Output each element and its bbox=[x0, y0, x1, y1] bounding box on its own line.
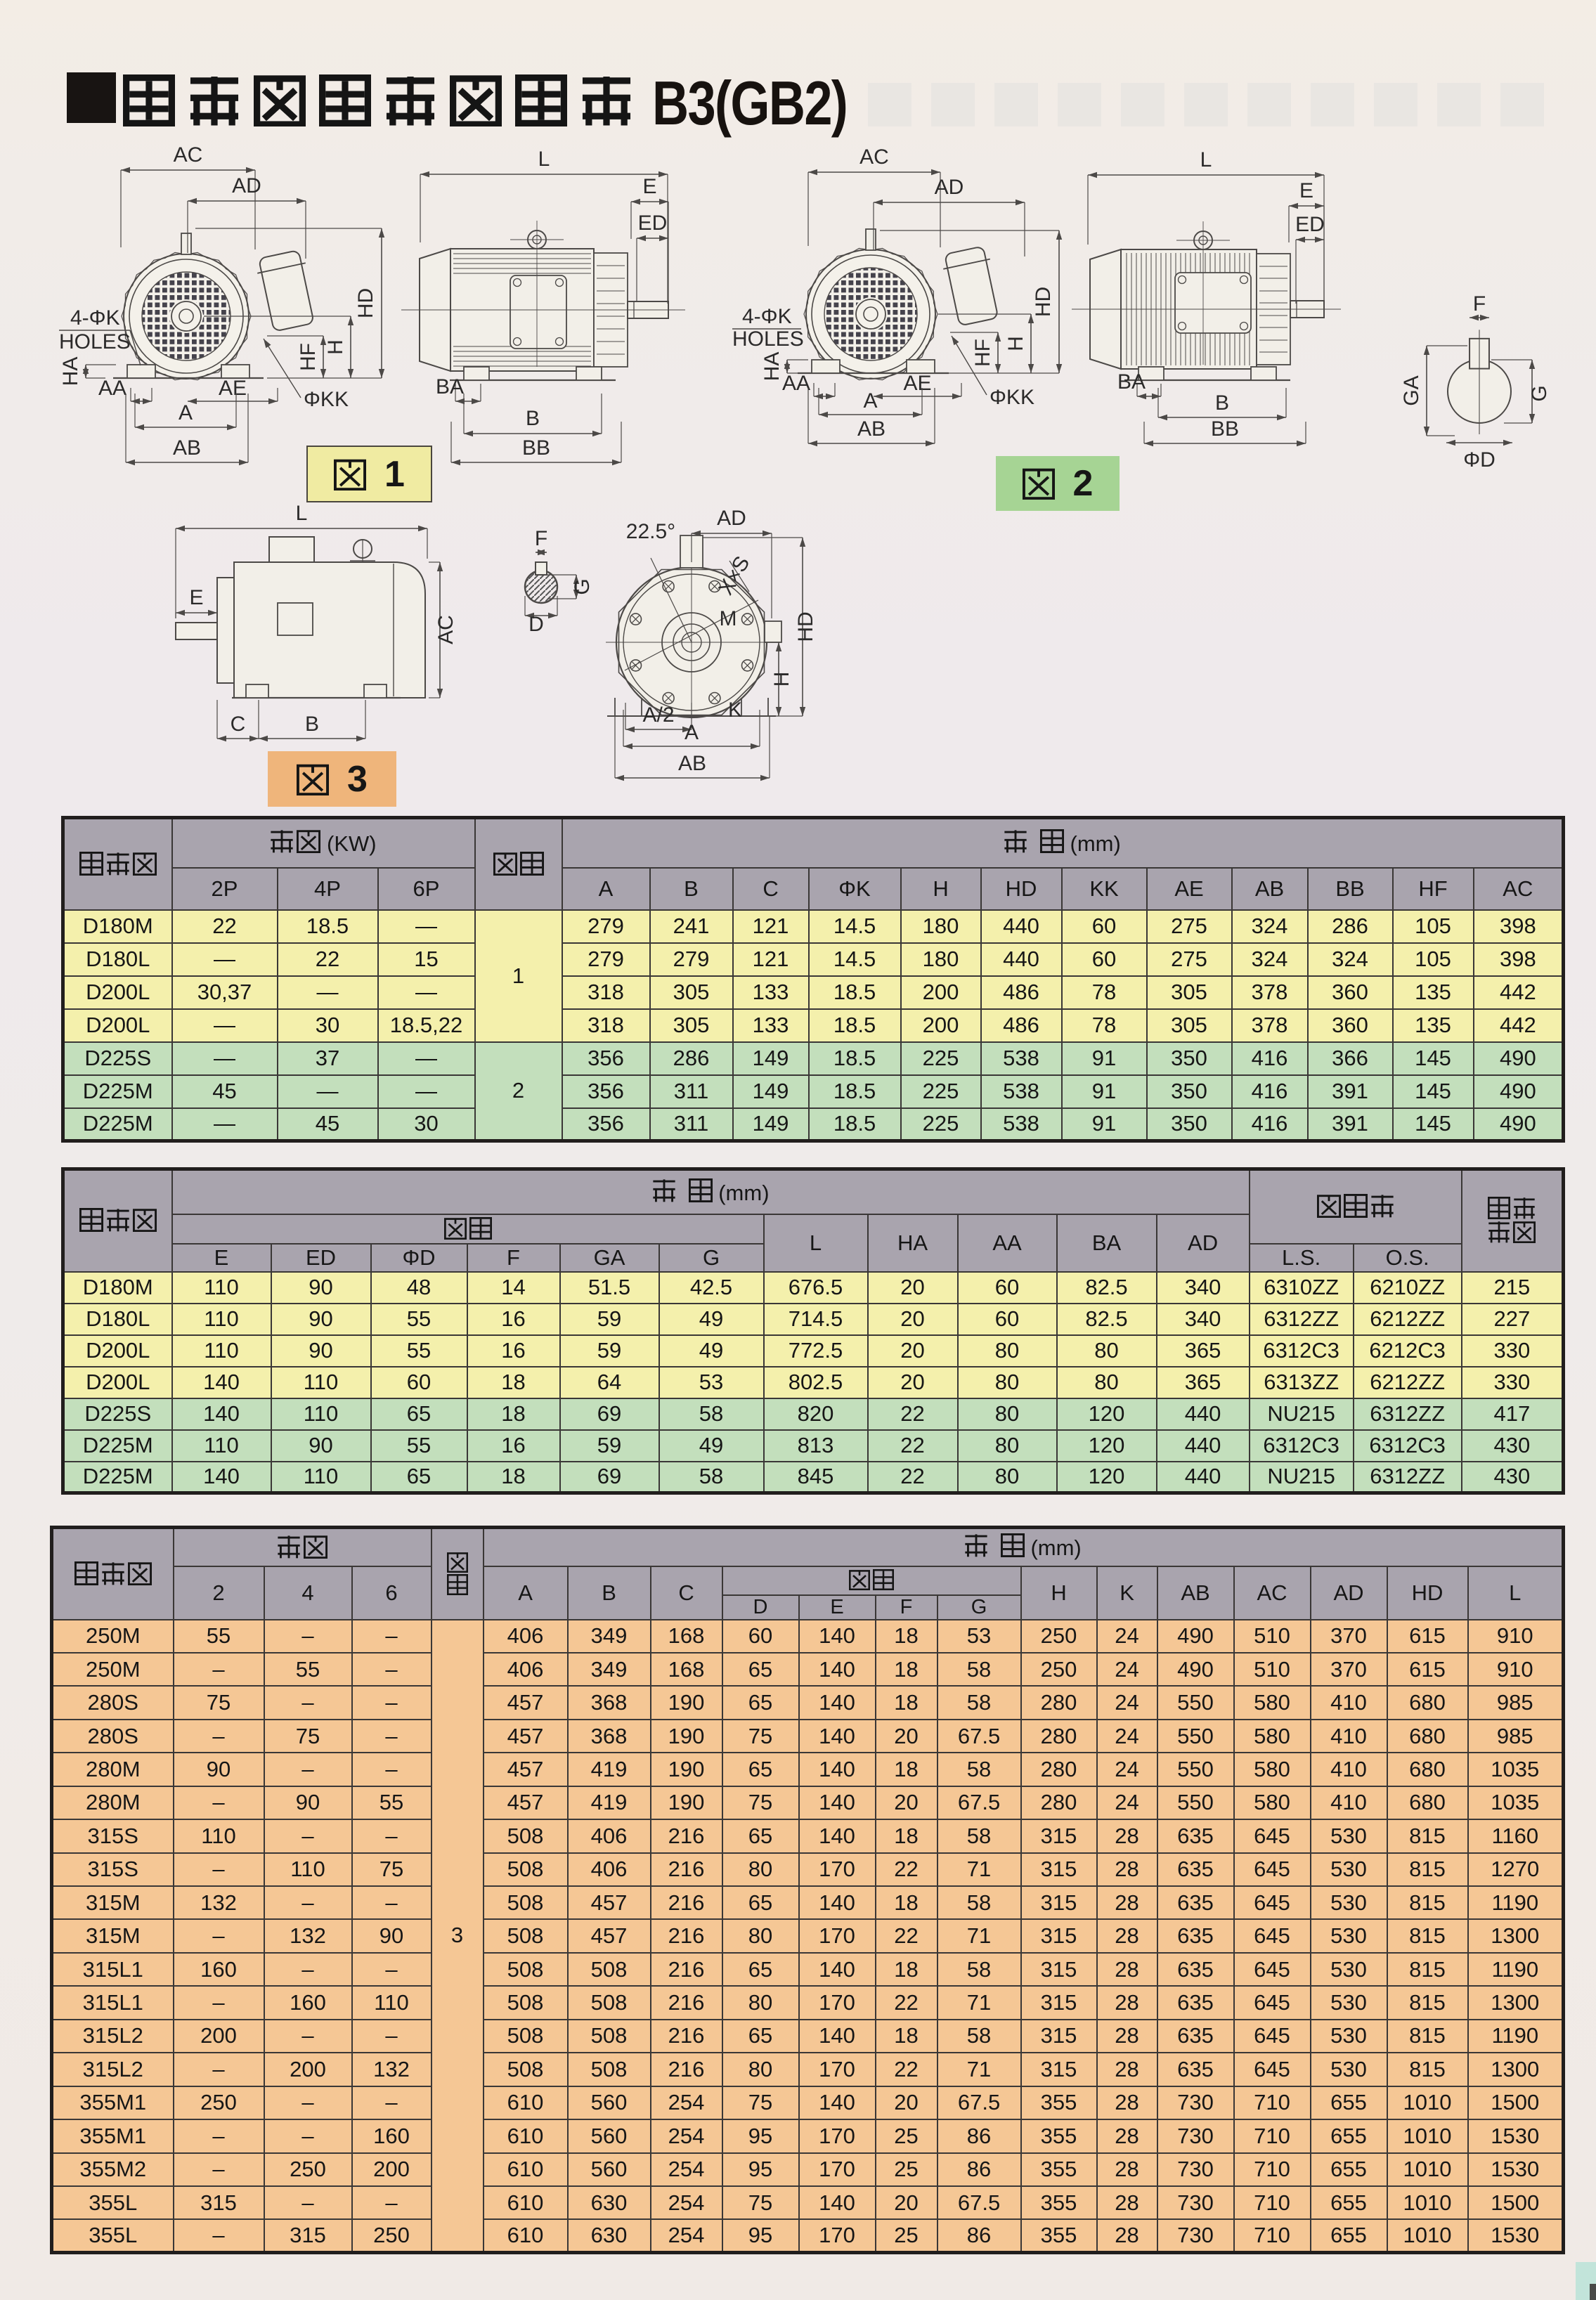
svg-text:H: H bbox=[770, 672, 793, 687]
svg-text:K: K bbox=[728, 699, 742, 722]
svg-text:C: C bbox=[231, 713, 246, 736]
svg-text:ED: ED bbox=[1295, 213, 1325, 236]
svg-text:M: M bbox=[720, 607, 737, 630]
svg-text:H: H bbox=[324, 339, 347, 355]
svg-text:AE: AE bbox=[903, 372, 931, 395]
svg-text:G: G bbox=[1528, 385, 1551, 401]
svg-text:F: F bbox=[535, 527, 547, 550]
svg-text:A: A bbox=[179, 401, 193, 424]
svg-text:HD: HD bbox=[354, 288, 377, 318]
svg-text:AE: AE bbox=[219, 377, 247, 400]
svg-text:L: L bbox=[538, 148, 550, 171]
svg-text:HD: HD bbox=[1032, 287, 1055, 317]
svg-text:AD: AD bbox=[935, 176, 964, 199]
svg-text:B: B bbox=[1215, 391, 1229, 415]
svg-text:HA: HA bbox=[760, 352, 784, 382]
svg-text:AB: AB bbox=[857, 417, 885, 441]
svg-text:AA: AA bbox=[98, 377, 126, 400]
svg-text:E: E bbox=[1299, 179, 1313, 202]
svg-text:HOLES: HOLES bbox=[732, 327, 804, 351]
svg-text:B: B bbox=[526, 407, 540, 430]
svg-text:L: L bbox=[1200, 148, 1212, 171]
svg-text:BA: BA bbox=[436, 375, 464, 398]
svg-text:HA: HA bbox=[59, 357, 82, 386]
svg-text:HF: HF bbox=[297, 343, 320, 371]
svg-text:AC: AC bbox=[174, 143, 203, 167]
svg-text:BA: BA bbox=[1117, 370, 1146, 394]
svg-text:AD: AD bbox=[717, 507, 746, 530]
svg-text:AC: AC bbox=[859, 145, 889, 169]
svg-text:GA: GA bbox=[1400, 375, 1423, 405]
svg-text:L: L bbox=[296, 502, 308, 525]
svg-text:D: D bbox=[528, 613, 544, 636]
svg-text:AA: AA bbox=[782, 372, 810, 395]
svg-text:AD: AD bbox=[232, 174, 261, 197]
svg-text:HF: HF bbox=[971, 339, 994, 367]
svg-text:A: A bbox=[685, 721, 699, 744]
svg-text:4-ΦK: 4-ΦK bbox=[70, 306, 120, 330]
svg-text:AB: AB bbox=[173, 436, 201, 460]
svg-text:BB: BB bbox=[522, 436, 550, 460]
svg-text:ED: ED bbox=[638, 212, 668, 235]
svg-text:AB: AB bbox=[678, 752, 706, 775]
svg-text:ΦD: ΦD bbox=[1463, 448, 1496, 472]
svg-text:4-ΦK: 4-ΦK bbox=[742, 305, 792, 328]
svg-text:B: B bbox=[305, 713, 319, 736]
svg-text:A: A bbox=[863, 389, 877, 412]
svg-text:ΦKK: ΦKK bbox=[990, 386, 1034, 409]
svg-text:HD: HD bbox=[794, 611, 817, 642]
svg-text:ΦKK: ΦKK bbox=[304, 388, 349, 411]
svg-text:G: G bbox=[571, 578, 594, 595]
svg-text:E: E bbox=[642, 175, 656, 198]
svg-text:A/2: A/2 bbox=[642, 703, 674, 727]
svg-text:F: F bbox=[1473, 292, 1486, 316]
svg-text:E: E bbox=[189, 586, 203, 609]
svg-text:H: H bbox=[1004, 336, 1027, 351]
svg-text:HOLES: HOLES bbox=[59, 330, 131, 353]
svg-text:22.5°: 22.5° bbox=[626, 520, 675, 543]
svg-text:AC: AC bbox=[434, 615, 458, 644]
svg-text:BB: BB bbox=[1211, 417, 1239, 441]
